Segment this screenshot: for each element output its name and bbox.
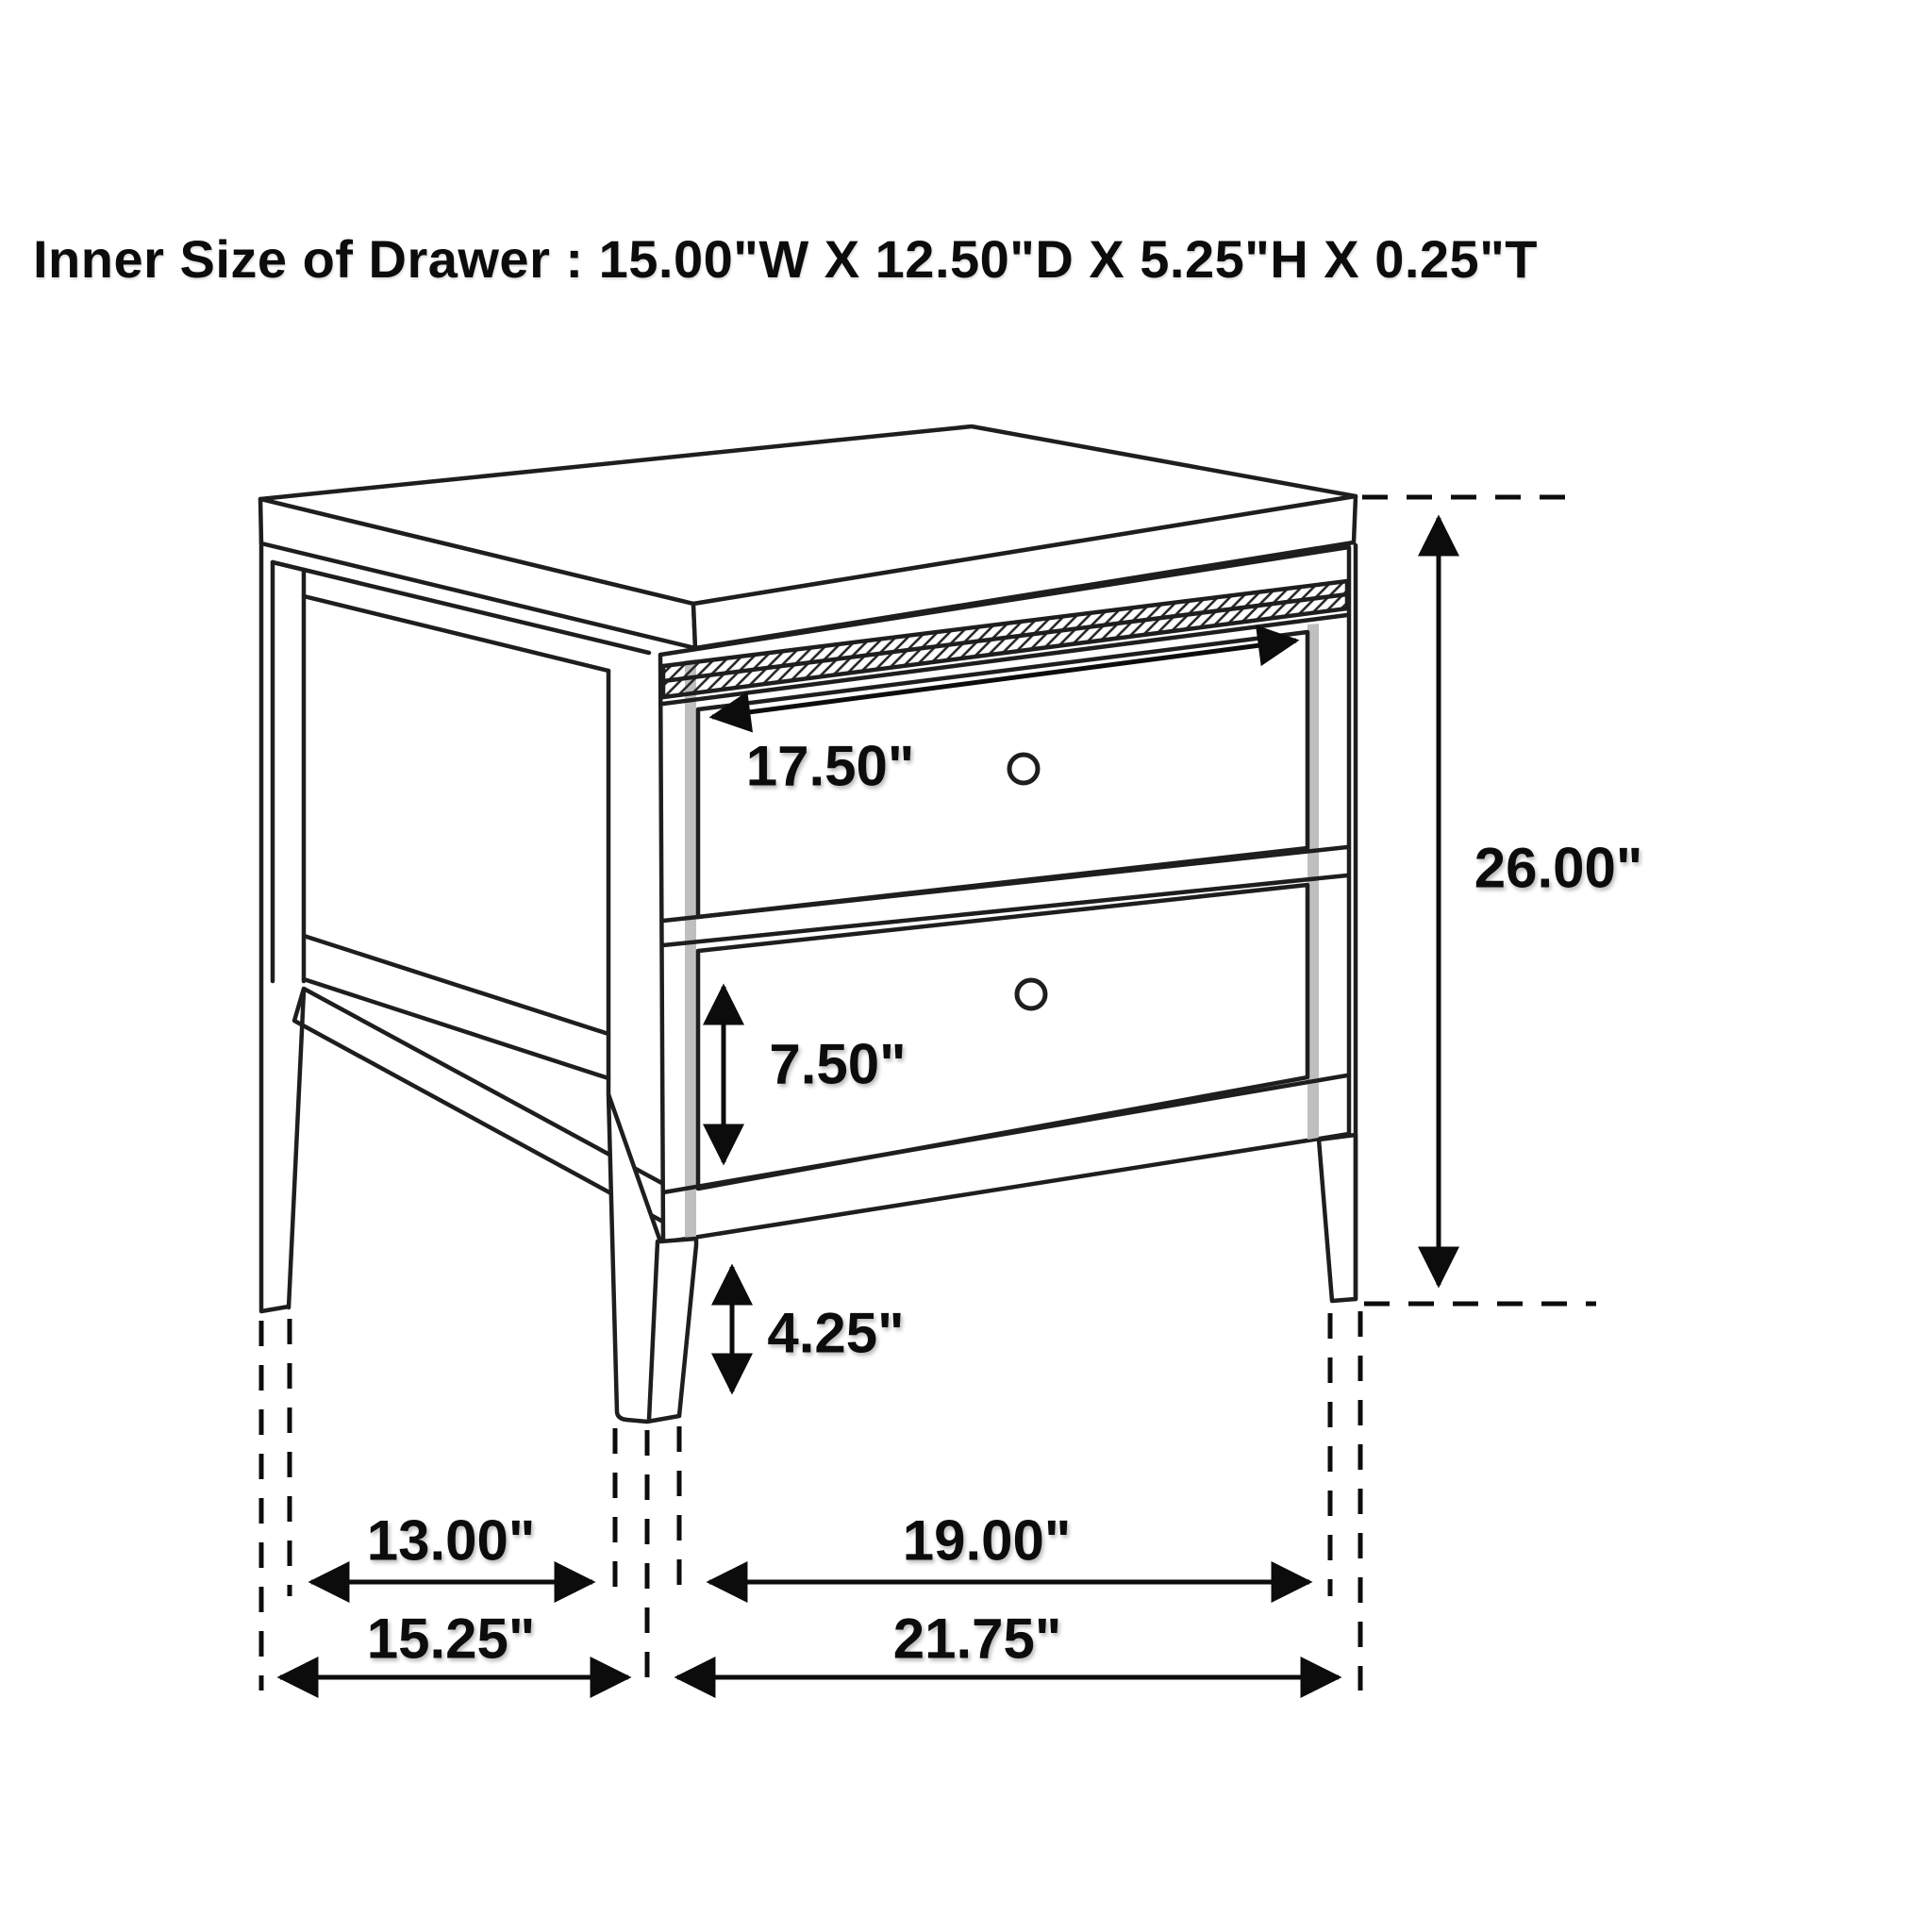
dim-label-front-overall-width: 21.75" [893, 1607, 1062, 1672]
front-face [660, 547, 1349, 1242]
dim-label-bottom-drawer-height: 7.50" [769, 1032, 906, 1097]
top-drawer-knob [1009, 755, 1038, 783]
dim-label-front-leg-clearance: 19.00" [903, 1508, 1072, 1574]
dim-label-leg-height: 4.25" [767, 1301, 904, 1366]
dim-label-side-overall-depth: 15.25" [367, 1607, 536, 1672]
bottom-drawer-knob [1017, 980, 1045, 1008]
dim-label-drawer-face-width: 17.50" [746, 734, 915, 799]
front-right-leg [1319, 1135, 1356, 1301]
drawer-opening-left-gap [685, 659, 696, 1242]
dimension-diagram-page: Inner Size of Drawer : 15.00"W X 12.50"D… [0, 0, 1932, 1932]
rear-left-leg-inner-edge [289, 991, 304, 1307]
dim-label-side-leg-clearance: 13.00" [367, 1508, 536, 1574]
rear-left-leg-bottom-edge [261, 1307, 289, 1311]
diagram-title: Inner Size of Drawer : 15.00"W X 12.50"D… [33, 228, 1538, 290]
dim-label-overall-height: 26.00" [1474, 836, 1643, 901]
